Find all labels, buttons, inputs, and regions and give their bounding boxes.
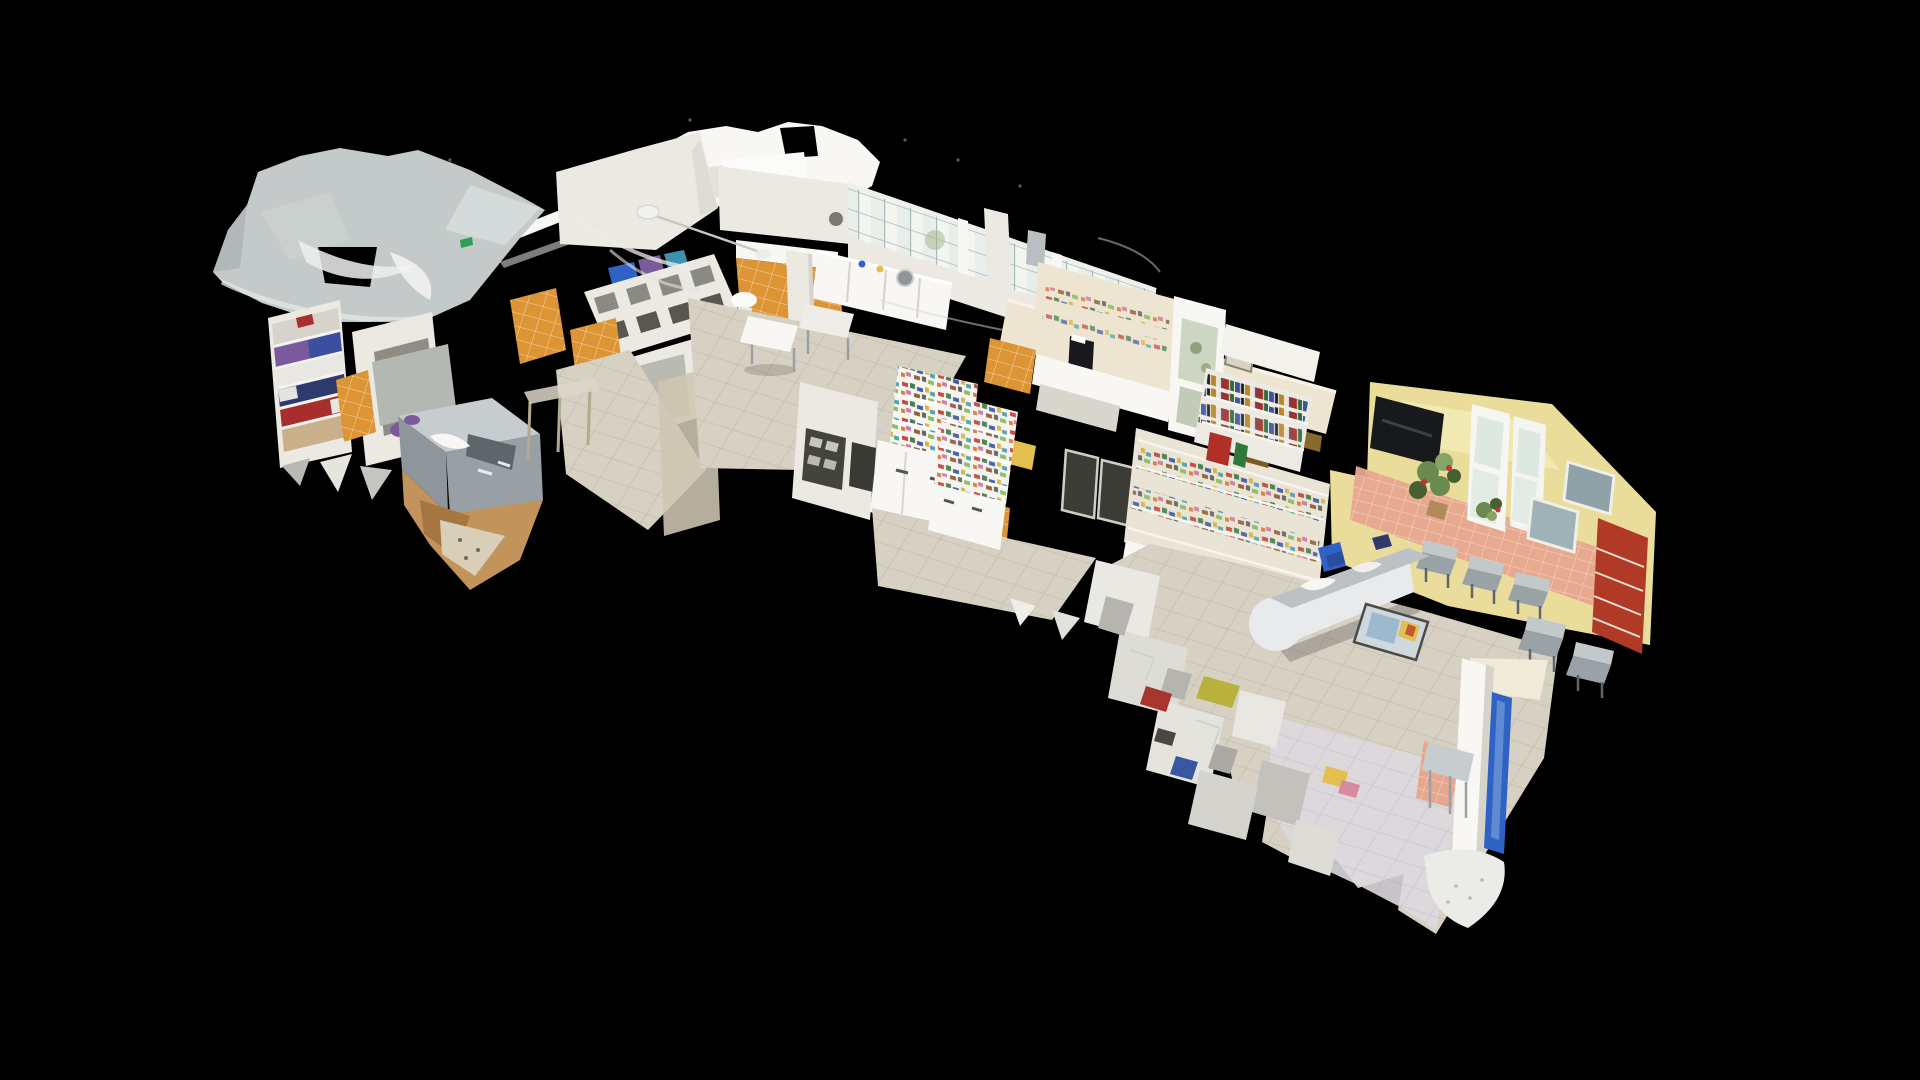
counter-item-blue — [859, 261, 866, 268]
dollhouse-viewport[interactable] — [0, 0, 1920, 1080]
window-foliage — [925, 230, 945, 250]
red-binder — [1206, 432, 1232, 466]
model-canvas[interactable] — [0, 0, 1920, 1080]
red-cabinet — [1592, 518, 1648, 654]
sink-basin — [731, 292, 757, 308]
window-post — [958, 218, 968, 276]
wall-fan — [829, 212, 843, 226]
gray-chimney — [1026, 230, 1046, 268]
interior-window — [1062, 450, 1098, 518]
steel-pot — [897, 270, 913, 286]
poster-board — [802, 428, 846, 490]
pillar-2 — [984, 208, 1012, 302]
purple-item — [404, 415, 420, 425]
counter-item-yellow — [877, 266, 884, 273]
poster-board-2 — [849, 442, 876, 492]
